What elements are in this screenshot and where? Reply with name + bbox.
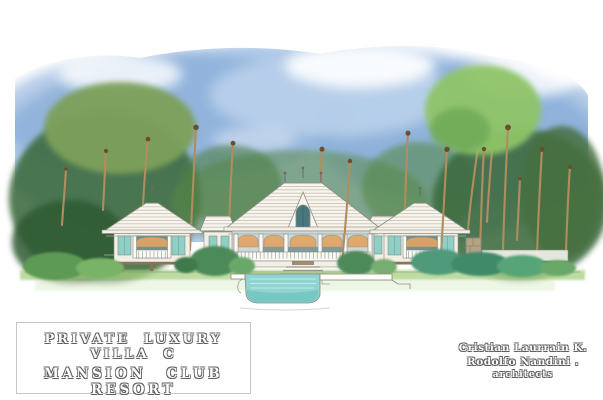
architect-role: architects [448,369,598,381]
title-block: PRIVATE LUXURY VILLA C MANSION CLUB RESO… [16,322,251,394]
presentation-board: PRIVATE LUXURY VILLA C MANSION CLUB RESO… [0,0,603,400]
architect-name-1: Cristian Laurrain K. [448,341,598,355]
project-title-line1: PRIVATE LUXURY VILLA C [17,332,250,362]
architect-name-2: Rodolfo Nandini . [448,355,598,369]
infinity-pool [231,274,410,310]
project-title-line2: MANSION CLUB RESORT [17,366,250,398]
architect-credits: Cristian Laurrain K. Rodolfo Nandini . a… [448,341,598,381]
